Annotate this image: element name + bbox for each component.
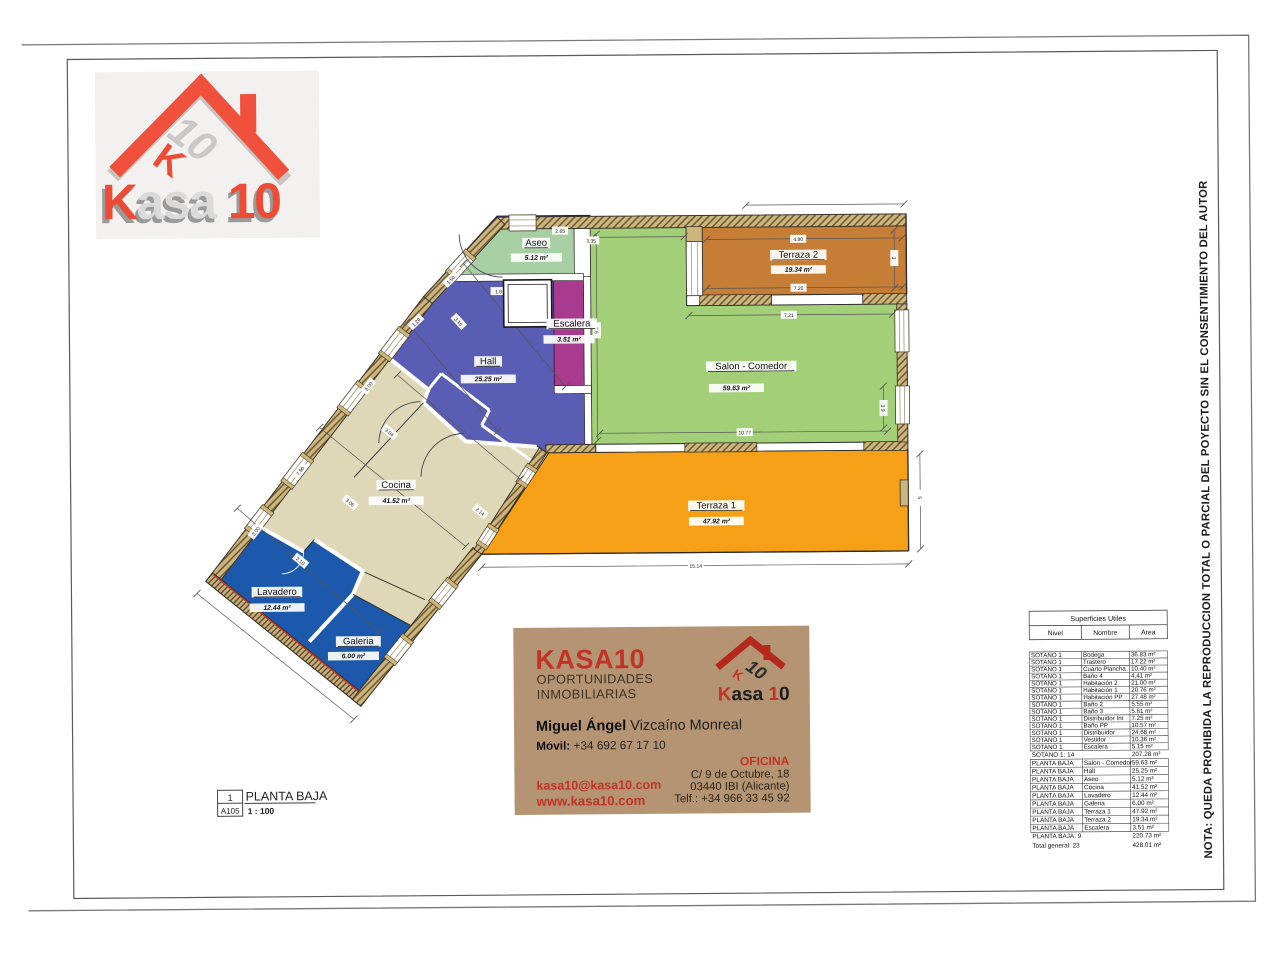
svg-text:kasa10@kasa10.com: kasa10@kasa10.com [536,778,661,793]
svg-text:5.15 m²: 5.15 m² [1132,743,1153,750]
svg-text:C/ 9 de Octubre, 18: C/ 9 de Octubre, 18 [691,768,790,781]
svg-text:PLANTA BAJA: PLANTA BAJA [1032,776,1075,783]
svg-text:7.20: 7.20 [794,286,804,292]
svg-text:Baño 2: Baño 2 [1083,701,1103,708]
svg-text:41.52 m²: 41.52 m² [382,498,411,505]
svg-text:Hall: Hall [480,356,496,367]
svg-text:5.12 m²: 5.12 m² [1132,776,1154,783]
svg-text:10.77: 10.77 [738,430,751,436]
svg-text:Kasa 10: Kasa 10 [718,684,790,706]
svg-text:59.63 m²: 59.63 m² [723,385,751,392]
svg-text:47.92 m²: 47.92 m² [702,518,731,525]
svg-text:PLANTA BAJA: 9: PLANTA BAJA: 9 [1032,833,1081,840]
svg-text:5.12 m²: 5.12 m² [525,255,549,262]
svg-text:4.80: 4.80 [793,237,803,243]
svg-text:NOTA: QUEDA PROHIBIDA LA REPRO: NOTA: QUEDA PROHIBIDA LA REPRODUCCION TO… [1198,181,1215,859]
svg-text:3.51 m²: 3.51 m² [1132,824,1154,831]
svg-text:www.kasa10.com: www.kasa10.com [536,793,646,809]
svg-text:Nivel: Nivel [1048,630,1064,637]
svg-text:Galeria: Galeria [343,636,374,647]
svg-text:19.34 m²: 19.34 m² [785,267,813,274]
svg-text:Área: Área [1141,627,1156,636]
svg-text:3.9: 3.9 [879,405,885,412]
svg-text:12.44 m²: 12.44 m² [1132,792,1157,799]
svg-text:PLANTA BAJA: PLANTA BAJA [1032,768,1075,775]
svg-text:428.01 m²: 428.01 m² [1132,842,1161,849]
svg-text:SOTANO 1: 14: SOTANO 1: 14 [1032,752,1075,759]
svg-text:220.73 m²: 220.73 m² [1132,832,1161,839]
svg-text:PLANTA BAJA: PLANTA BAJA [1032,760,1075,767]
svg-text:Galeria: Galeria [1084,800,1105,807]
svg-text:OPORTUNIDADES: OPORTUNIDADES [537,671,654,687]
svg-text:Distribuidor: Distribuidor [1084,729,1115,736]
svg-text:Salon - Comedor: Salon - Comedor [1084,760,1133,767]
svg-text:Terraza 1: Terraza 1 [696,500,736,511]
svg-text:Cuarto Plancha: Cuarto Plancha [1083,666,1126,673]
svg-text:Escalera: Escalera [1084,825,1109,832]
svg-text:Terraza 2: Terraza 2 [778,250,818,261]
svg-text:Aseo: Aseo [525,238,547,249]
svg-text:PLANTA BAJA: PLANTA BAJA [1032,784,1075,791]
svg-text:PLANTA BAJA: PLANTA BAJA [1032,817,1075,824]
svg-text:3.51 m²: 3.51 m² [557,336,581,343]
svg-text:15.14: 15.14 [689,564,702,570]
svg-text:Terraza 1: Terraza 1 [1084,808,1111,815]
svg-text:PLANTA BAJA: PLANTA BAJA [1032,825,1075,832]
svg-text:Distribuidor Int: Distribuidor Int [1083,715,1123,722]
svg-text:19.34 m²: 19.34 m² [1132,816,1157,823]
svg-text:Cocina: Cocina [1084,784,1104,791]
svg-text:7.21: 7.21 [784,313,794,319]
svg-text:Cocina: Cocina [381,480,411,491]
svg-text:41.52 m²: 41.52 m² [1132,784,1157,791]
svg-text:Lavadero: Lavadero [257,587,297,598]
svg-text:INMOBILIARIAS: INMOBILIARIAS [537,686,637,702]
svg-text:SOTANO 1: SOTANO 1 [1032,744,1063,751]
svg-text:5.61 m²: 5.61 m² [1131,708,1152,715]
svg-text:PLANTA BAJA: PLANTA BAJA [1032,792,1075,799]
svg-text:12.44 m²: 12.44 m² [263,605,291,612]
svg-text:59.63 m²: 59.63 m² [1132,759,1157,766]
svg-text:A105: A105 [221,807,240,816]
svg-text:PLANTA BAJA: PLANTA BAJA [245,789,328,804]
svg-text:Escalera: Escalera [553,318,591,329]
svg-text:Móvil: +34 692 67 17 10: Móvil: +34 692 67 17 10 [536,738,666,753]
svg-text:1 : 100: 1 : 100 [248,806,275,816]
svg-text:4,41 m²: 4,41 m² [1131,672,1152,679]
svg-text:1: 1 [228,793,233,803]
svg-text:Miguel Ángel Vizcaíno Monreal: Miguel Ángel Vizcaíno Monreal [536,716,742,735]
svg-text:OFICINA: OFICINA [740,754,790,768]
svg-text:207.28 m²: 207.28 m² [1132,751,1161,758]
svg-text:Kasa 10: Kasa 10 [102,173,281,230]
svg-text:Aseo: Aseo [1084,776,1099,783]
svg-text:Total general: 23: Total general: 23 [1032,842,1080,849]
svg-text:Baño 4: Baño 4 [1083,673,1103,680]
svg-text:25.25 m²: 25.25 m² [1132,768,1157,775]
svg-text:Baño 3: Baño 3 [1083,708,1103,715]
svg-text:6.00 m²: 6.00 m² [342,653,366,660]
svg-text:Habitación PP: Habitación PP [1083,694,1122,701]
svg-text:Hall: Hall [1084,768,1095,775]
svg-text:3.35: 3.35 [586,239,596,245]
svg-text:Telf.: +34 966 33 45 92: Telf.: +34 966 33 45 92 [674,792,789,805]
svg-text:PLANTA BAJA: PLANTA BAJA [1032,809,1075,816]
svg-text:1.8: 1.8 [495,289,502,295]
svg-text:03440 IBI (Alicante): 03440 IBI (Alicante) [690,780,790,793]
svg-text:Terraza 2: Terraza 2 [1084,816,1111,823]
svg-text:25.25 m²: 25.25 m² [474,376,503,383]
svg-text:PLANTA BAJA: PLANTA BAJA [1032,801,1075,808]
svg-text:Lavadero: Lavadero [1084,792,1111,799]
svg-text:Escalera: Escalera [1084,744,1109,751]
svg-text:6.00 m²: 6.00 m² [1132,800,1154,807]
svg-text:Superficies Utiles: Superficies Utiles [1070,614,1126,623]
svg-text:47.92 m²: 47.92 m² [1132,808,1157,815]
svg-text:Nombre: Nombre [1093,630,1117,637]
svg-text:5: 5 [916,496,922,499]
svg-text:5.55 m²: 5.55 m² [1131,701,1152,708]
svg-text:2.65: 2.65 [555,229,565,235]
svg-text:3: 3 [890,257,896,260]
